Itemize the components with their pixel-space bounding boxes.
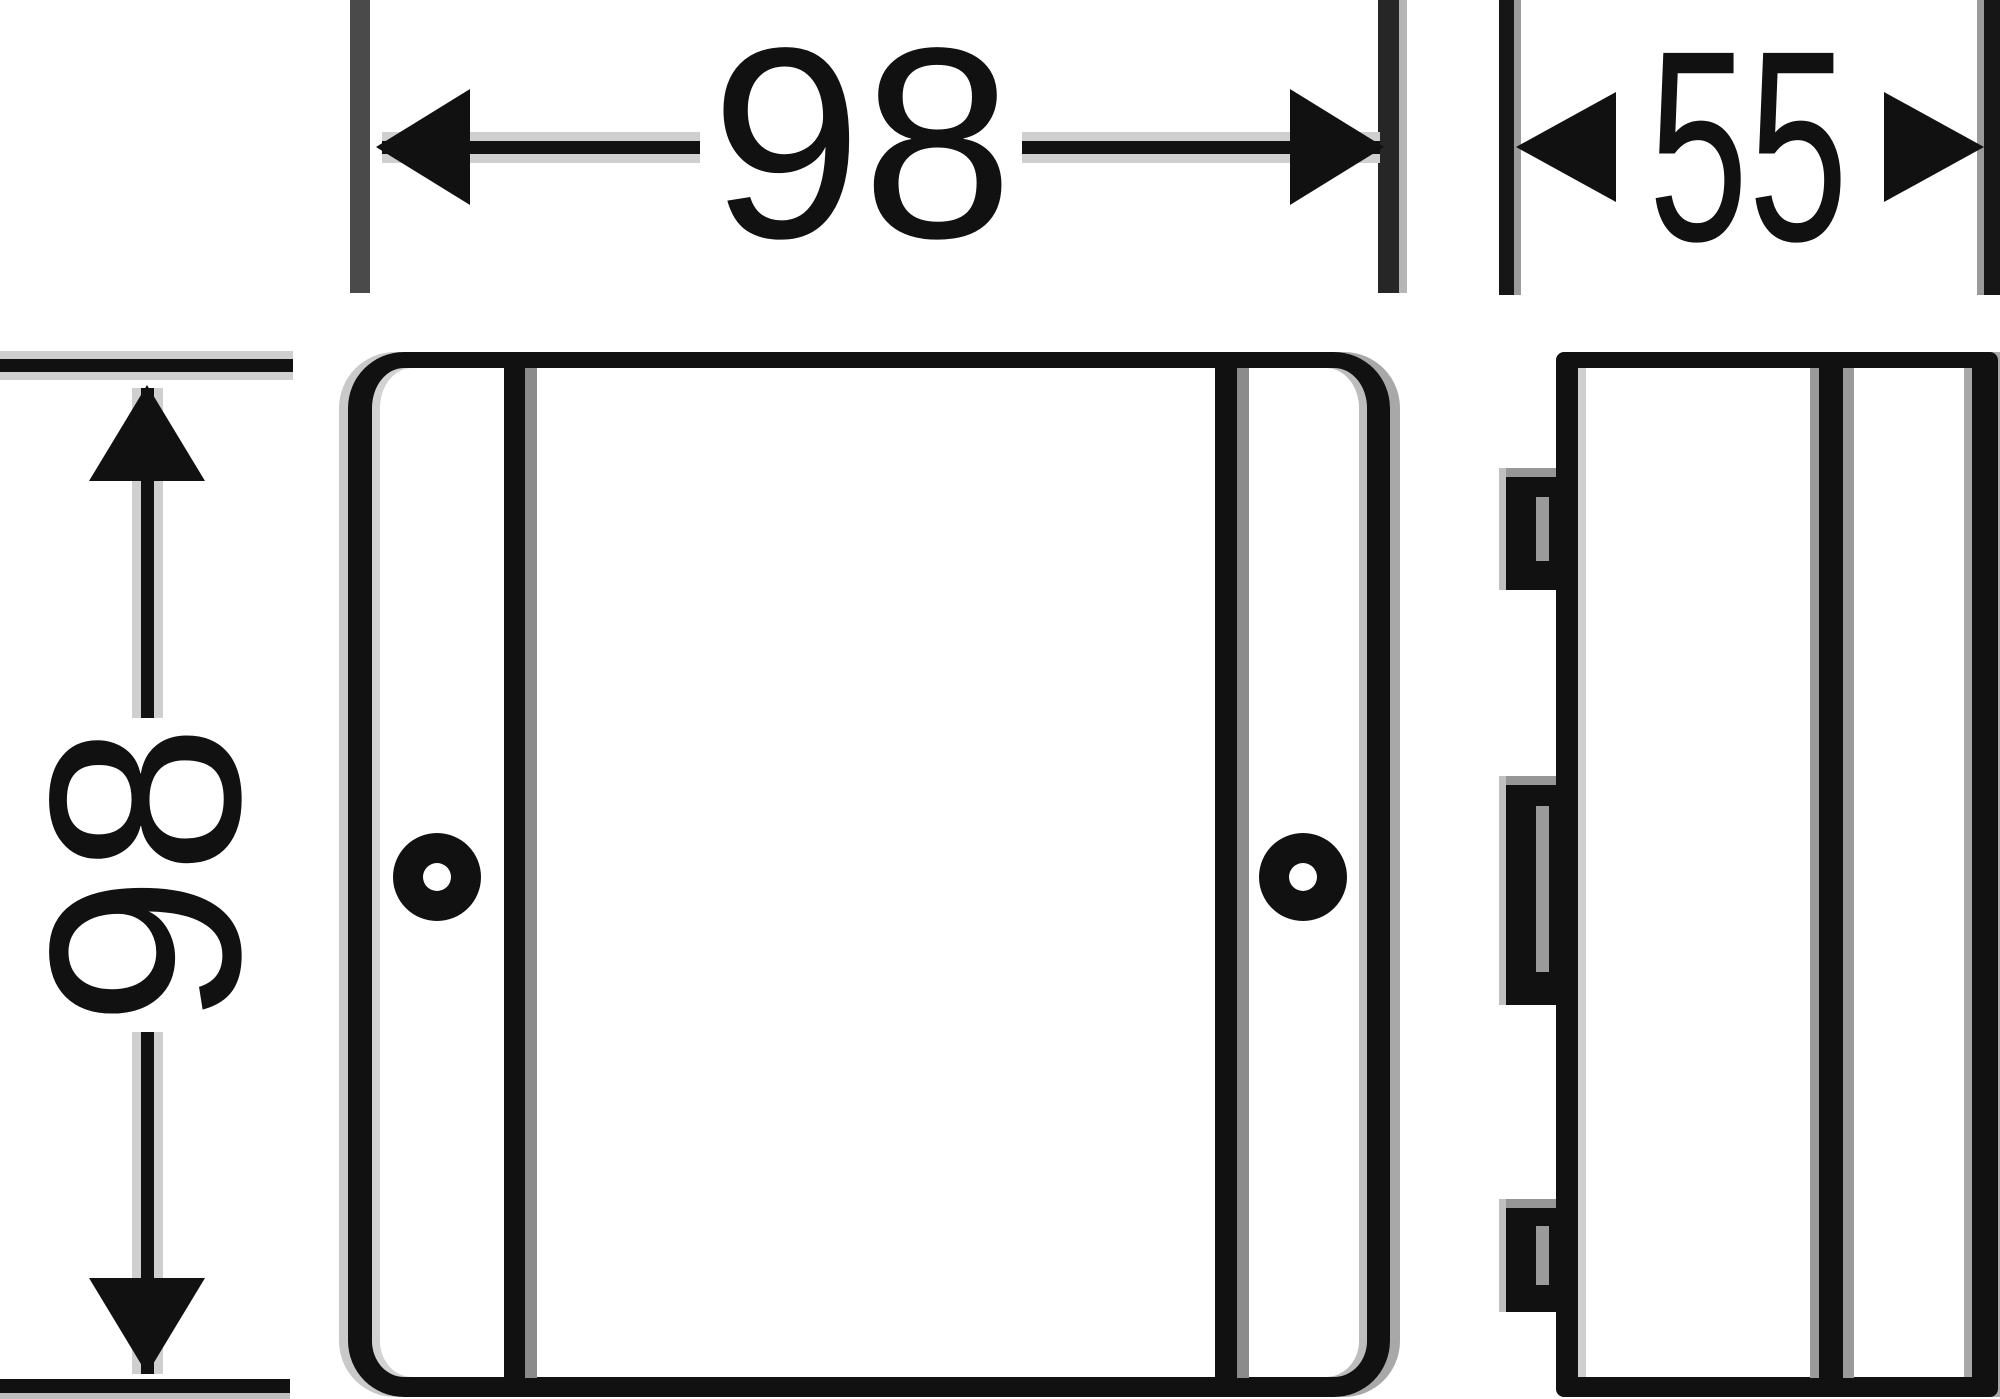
dim-depth-label: 55 — [1648, 3, 1848, 289]
mounting-tab-bottom-slot — [1536, 1226, 1549, 1285]
dim-width-extension-line-left — [350, 0, 370, 293]
dim-height-extension-line-top — [0, 359, 293, 372]
dim-depth-extension-line-right — [1984, 0, 2000, 295]
dim-width-arrow-left-icon — [376, 89, 470, 205]
mounting-tab-middle-slot — [1536, 806, 1549, 972]
front-divider-right — [1215, 368, 1237, 1378]
front-divider-left — [504, 368, 525, 1378]
screw-hole-left — [393, 833, 481, 921]
drawing-canvas: 98 98 55 — [0, 0, 2000, 1399]
mounting-tab-middle — [1506, 776, 1556, 1005]
dim-width-label: 98 — [702, 0, 1022, 286]
dim-height-label: 98 — [0, 705, 315, 1045]
mounting-tab-top — [1506, 468, 1556, 590]
screw-hole-right-center — [1289, 863, 1317, 891]
side-view-divider — [1819, 368, 1843, 1378]
dim-height-extension-line-bottom — [0, 1379, 290, 1393]
dim-height-arrow-down-icon — [89, 1278, 205, 1374]
mounting-tab-top-slot — [1536, 497, 1549, 561]
mounting-tab-bottom — [1506, 1199, 1556, 1312]
screw-hole-left-center — [423, 863, 451, 891]
dim-height-arrow-up-icon — [89, 385, 205, 481]
side-view-outline — [1556, 352, 1998, 1397]
screw-hole-right — [1259, 833, 1347, 921]
dim-depth-extension-line-left — [1499, 0, 1514, 295]
dim-width-arrow-right-icon — [1290, 89, 1384, 205]
